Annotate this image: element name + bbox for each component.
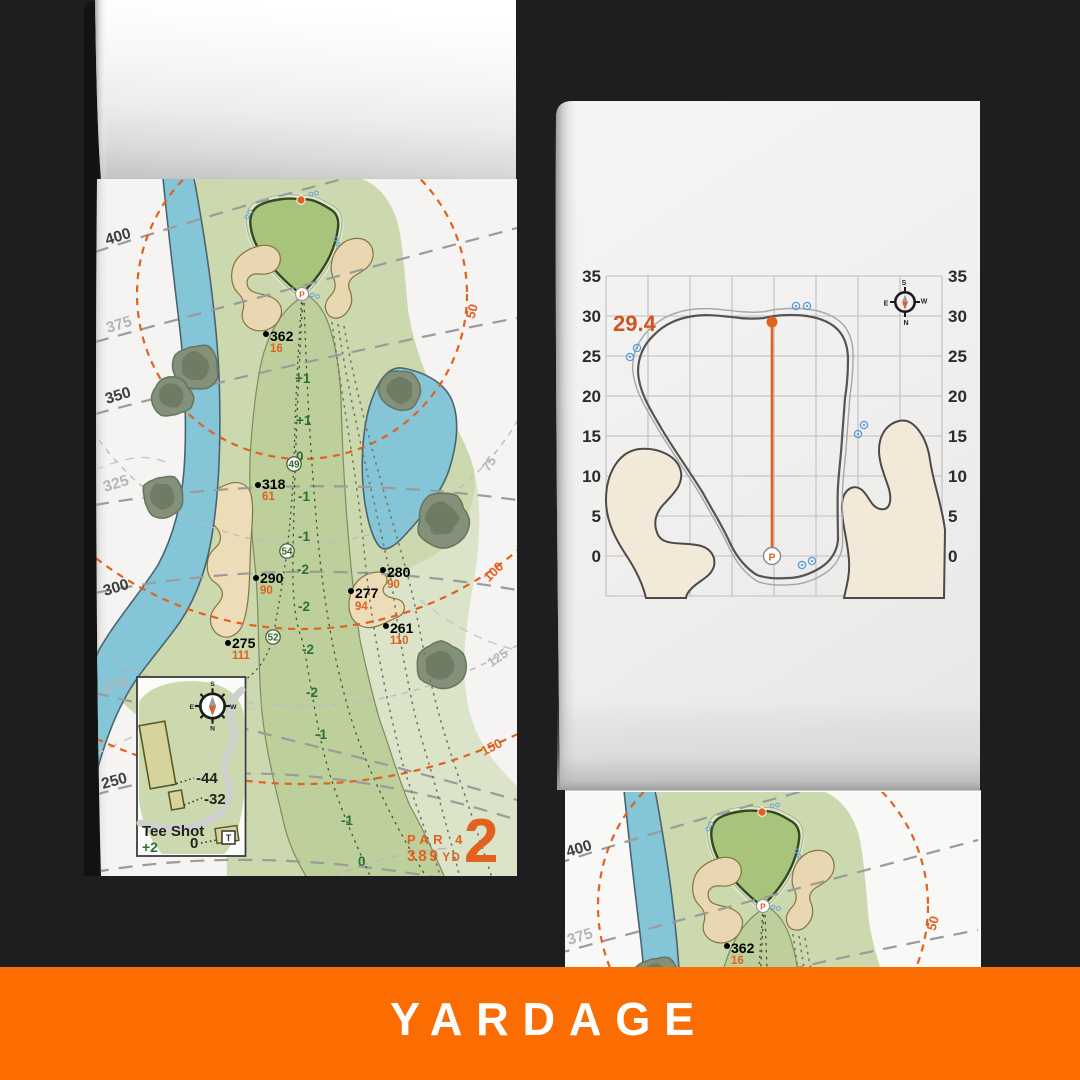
svg-text:15: 15 (948, 427, 967, 446)
svg-text:YARDAGE: YARDAGE (390, 993, 708, 1045)
svg-text:W: W (921, 299, 928, 306)
svg-text:29.4: 29.4 (613, 311, 657, 336)
svg-text:35: 35 (948, 267, 967, 286)
svg-text:S: S (902, 280, 907, 287)
svg-text:N: N (903, 320, 908, 327)
svg-text:5: 5 (948, 507, 957, 526)
svg-text:E: E (884, 301, 889, 308)
svg-text:5: 5 (592, 507, 601, 526)
svg-text:30: 30 (948, 307, 967, 326)
svg-text:20: 20 (948, 387, 967, 406)
svg-text:10: 10 (948, 467, 967, 486)
svg-text:20: 20 (582, 387, 601, 406)
svg-text:0: 0 (592, 547, 601, 566)
svg-text:25: 25 (948, 347, 967, 366)
svg-text:30: 30 (582, 307, 601, 326)
svg-text:P: P (768, 552, 775, 564)
svg-text:0: 0 (948, 547, 957, 566)
svg-text:35: 35 (582, 267, 601, 286)
svg-text:25: 25 (582, 347, 601, 366)
svg-text:15: 15 (582, 427, 601, 446)
svg-text:10: 10 (582, 467, 601, 486)
